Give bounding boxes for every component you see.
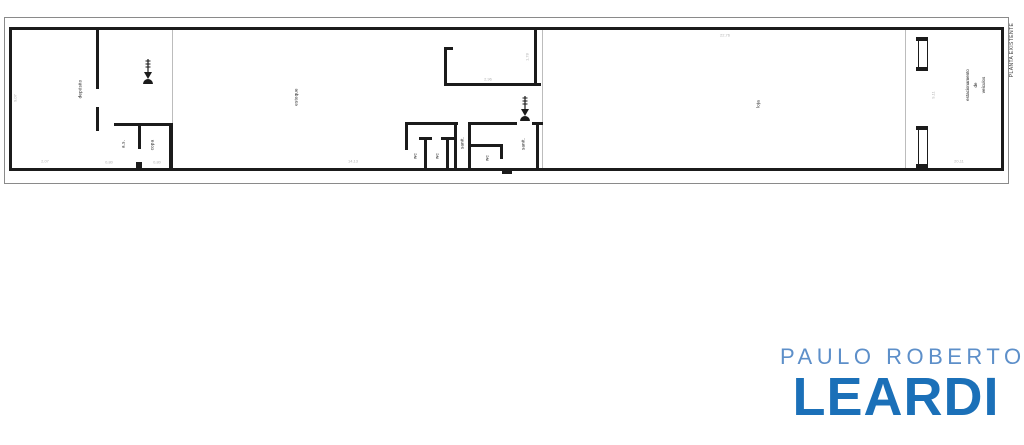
entry-arrow-icon — [142, 58, 154, 84]
wall — [446, 137, 449, 171]
wall — [96, 107, 99, 131]
room-label-sanit1: sanit. — [460, 137, 465, 149]
estacionamento-line1: estacionamento — [964, 40, 972, 130]
wall — [468, 122, 517, 125]
dim-label: 1,78 — [525, 53, 530, 61]
room-label-sanit2: sanit. — [521, 138, 526, 150]
room-label-wc2: wc — [435, 153, 440, 159]
wall — [405, 122, 408, 150]
wall — [96, 30, 99, 89]
estacionamento-line2: de — [972, 40, 980, 130]
dim-label: 2,07 — [41, 159, 49, 164]
gate-cap — [916, 67, 928, 71]
gate-cap — [916, 126, 928, 130]
leardi-logo: PAULO ROBERTO LEARDI — [780, 344, 1012, 423]
gate-leaf — [918, 128, 928, 168]
floor-plan: depósito a.s. copa estoque wc wc sanit. … — [4, 17, 1009, 184]
wall — [454, 122, 457, 171]
wall — [444, 47, 447, 86]
wall — [1001, 27, 1004, 171]
room-label-estacionamento: estacionamento de veículos — [964, 40, 988, 130]
dim-label: 0,80 — [105, 160, 113, 165]
wall — [424, 137, 427, 171]
wall — [500, 144, 503, 159]
wall — [405, 122, 458, 125]
room-label-as: a.s. — [121, 140, 126, 148]
gate-cap — [916, 37, 928, 41]
dim-label: 2,96 — [484, 77, 492, 82]
door-threshold — [502, 168, 512, 174]
gate-cap — [916, 164, 928, 168]
dim-label: 14,13 — [348, 159, 358, 164]
wall — [114, 123, 173, 126]
logo-line-leardi: LEARDI — [780, 372, 1012, 423]
dim-label: 9,07 — [13, 94, 18, 102]
room-label-estoque: estoque — [294, 88, 299, 105]
wall — [471, 144, 503, 147]
dim-label: 22,76 — [720, 33, 730, 38]
wall — [169, 123, 173, 171]
dim-label: 20,11 — [954, 159, 964, 164]
dim-label: 9,11 — [931, 91, 936, 99]
wall — [534, 30, 537, 86]
dim-label: 0,80 — [153, 160, 161, 165]
room-label-loja: loja — [756, 100, 761, 108]
estacionamento-line3: veículos — [980, 40, 988, 130]
door-jamb — [136, 162, 142, 168]
room-label-copa: copa — [150, 140, 155, 151]
section-line — [905, 30, 906, 168]
room-label-deposito: depósito — [78, 80, 83, 99]
wall — [444, 83, 541, 86]
section-line — [542, 30, 543, 168]
wall — [9, 27, 1004, 30]
sheet-title: PLANTA EXISTENTE — [1009, 15, 1017, 85]
wall — [138, 123, 141, 149]
room-label-wc3: wc — [485, 155, 490, 161]
room-label-wc1: wc — [413, 153, 418, 159]
entry-arrow-icon — [519, 95, 531, 121]
wall — [536, 122, 539, 171]
